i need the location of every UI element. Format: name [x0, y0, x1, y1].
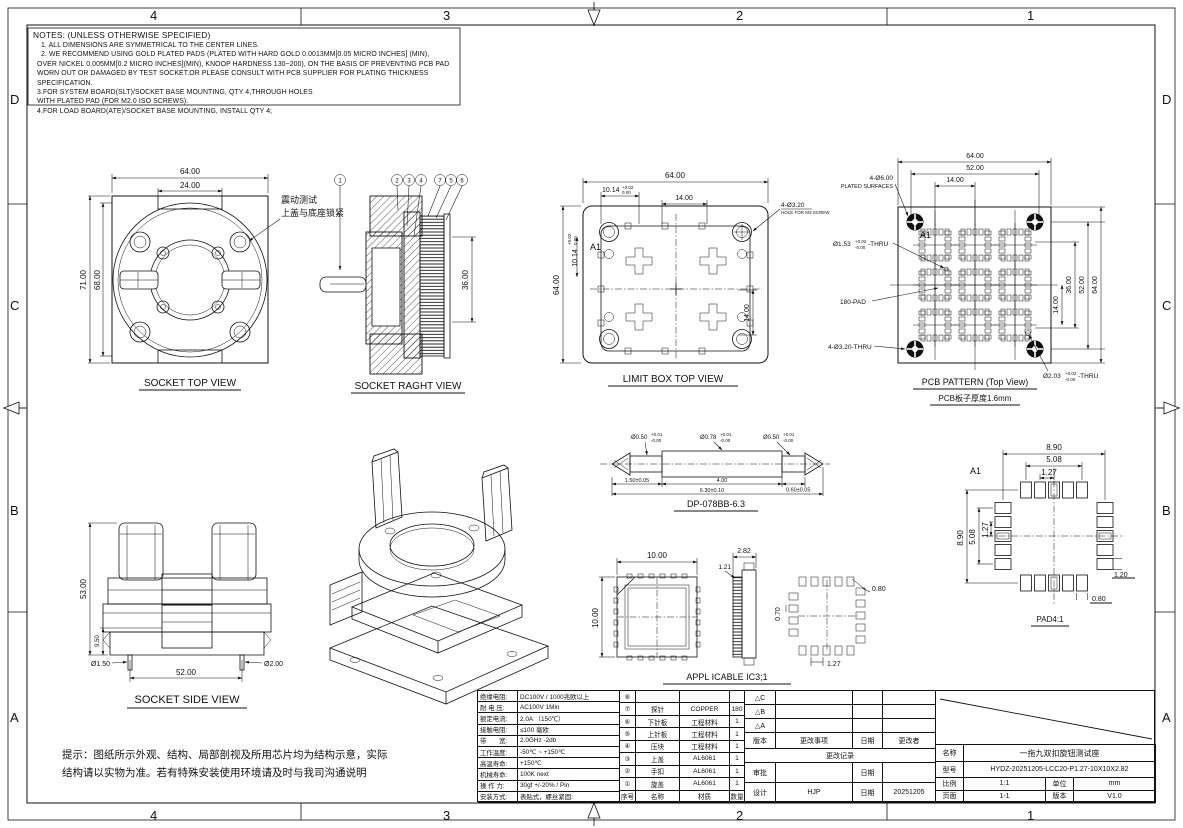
scale-label: 比例 [936, 778, 964, 791]
dim-label: 52.00 [176, 668, 197, 677]
zone-label-bottom-4: 4 [150, 808, 157, 823]
notes-line: WITH PLATED PAD (FOR M2.0 ISO SCREWS). [33, 97, 457, 106]
dim-label: 68.00 [93, 269, 102, 290]
zone-label-left-c: C [10, 298, 19, 313]
dim-label: 64.00 [966, 153, 984, 160]
rev-empty [883, 705, 936, 719]
spec-value: DC100V / 1000兆欧以上 [518, 691, 620, 702]
svg-text:-THRU: -THRU [868, 241, 889, 248]
hole-callout-2: HOLE FOR M3 SCREW [781, 210, 830, 215]
spec-label: 绝缘电阻: [478, 691, 518, 702]
svg-text:+0.01: +0.01 [783, 432, 795, 437]
zone-label-bottom-1: 1 [1027, 808, 1034, 823]
spec-label: 接触电阻: [478, 725, 518, 736]
svg-text:+0.01: +0.01 [651, 432, 663, 437]
zone-label-left-a: A [10, 710, 19, 725]
notes-line: 2. WE RECOMMEND USING GOLD PLATED PADS (… [33, 50, 457, 59]
view-probe: Ø0.50 +0.01 -0.00 Ø0.78 +0.01 -0.00 Ø0.5… [600, 432, 830, 511]
bom-no: ④ [620, 741, 636, 753]
svg-text:5: 5 [449, 179, 453, 185]
bom-name: 上盖 [636, 753, 680, 765]
bom-name: 上针板 [636, 728, 680, 740]
bom-header-name: 名称 [636, 791, 680, 803]
bom-name: 下针板 [636, 716, 680, 728]
spec-label: 机械寿命: [478, 769, 518, 780]
isometric-view [330, 449, 548, 704]
dim-label: 64.00 [665, 171, 686, 180]
spec-value: 表贴式，螺丝紧固: [518, 792, 620, 803]
dim-label: 2.82 [737, 548, 751, 555]
bom-material: COPPER [680, 703, 730, 715]
dim-label: 14.00 [1053, 296, 1060, 314]
rev-empty [883, 719, 936, 733]
page-value: 1-1 [964, 791, 1046, 804]
spec-value: 100K next [518, 769, 620, 780]
latch-right [222, 271, 260, 289]
unit-label: 单位 [1046, 778, 1074, 791]
model-label: 型号 [936, 762, 964, 778]
mount-hole [907, 214, 924, 231]
view-label: DP-078BB-6.3 [687, 499, 745, 509]
svg-text:+0.02: +0.02 [855, 239, 867, 244]
dim-label: 5.08 [1046, 455, 1062, 464]
rev-empty [853, 705, 883, 719]
bom-name: 压块 [636, 741, 680, 753]
dim-label: 1.27 [827, 661, 841, 668]
engineering-drawing-sheet: 64.00 24.00 71.00 68.00 震动测试 上盖与底座锁紧 SOC… [0, 0, 1183, 828]
rev-empty [883, 691, 936, 705]
dim-label: 9.50 [95, 635, 101, 647]
unit-value: mm [1074, 778, 1156, 791]
revision-table: △C △B △A 版本更改事项日期更改者 更改记录 审批日期 设计HJP日期20… [745, 691, 936, 801]
dim-label: 6.30±0.10 [700, 488, 724, 494]
version-value: V1.0 [1074, 791, 1156, 804]
rev-header-by: 更改者 [883, 733, 936, 749]
bom-header-material: 材质 [680, 791, 730, 803]
approve-name [776, 763, 853, 783]
center-mark-right [1157, 402, 1180, 414]
tip-note: 提示：图纸所示外观、结构、局部剖视及所用芯片均为结构示意，实际 结构请以实物为准… [62, 746, 452, 782]
view-label: APPL ICABLE IC3;1 [686, 672, 767, 682]
dim-label: 5.08 [968, 529, 977, 545]
dim-label: 8.90 [1046, 443, 1062, 452]
design-date-label: 日期 [853, 783, 883, 803]
view-pad-4to1: 8.90 5.08 1.27 8.90 5.08 1.27 1.20 0.80 … [956, 443, 1135, 626]
dim-label: Ø2.00 [264, 661, 283, 668]
rev-empty [853, 719, 883, 733]
view-applicable-ic: 10.00 10.00 2.82 1.21 0.80 0.70 1.27 APP… [591, 548, 886, 684]
view-label: LIMIT BOX TOP VIEW [623, 374, 724, 385]
bom-no: ② [620, 766, 636, 778]
notes-line: 4.FOR LOAD BOARD(ATE)/SOCKET BASE MOUNTI… [33, 107, 457, 116]
bom-no: ⑦ [620, 703, 636, 715]
dim-label: 10.14 [602, 187, 620, 194]
dim-label: 36.00 [461, 269, 470, 290]
rev-symbol-c: △C [745, 691, 776, 705]
svg-text:-0.00: -0.00 [1065, 377, 1076, 382]
bom-name: 旋盖 [636, 778, 680, 790]
rev-header-date: 日期 [853, 733, 883, 749]
bom-no: ③ [620, 753, 636, 765]
dim-label: 24.00 [180, 181, 201, 190]
bom-material: 工程材料 [680, 728, 730, 740]
dia-callout: Ø0.50 [631, 435, 648, 441]
approve-label: 审批 [745, 763, 776, 783]
title-block: 绝缘电阻:DC100V / 1000兆欧以上 耐 电 压:AC100V 1Min… [477, 690, 1155, 802]
spec-value: 2.0A （150℃） [518, 713, 620, 724]
mount-hole [1027, 341, 1044, 358]
dim-label: 52.00 [966, 165, 984, 172]
plated-callout: 4-Ø6.00 [870, 175, 894, 182]
vibration-note-line1: 震动测试 [281, 194, 317, 205]
pin1-marker: A1 [970, 466, 981, 476]
zone-label-top-1: 1 [1027, 8, 1034, 23]
bom-qty: 180 [730, 703, 745, 715]
svg-text:+0.02: +0.02 [1065, 371, 1077, 376]
spec-value: AC100V 1Min [518, 702, 620, 713]
bom-qty: 1 [730, 741, 745, 753]
notes-block: NOTES: (UNLESS OTHERWISE SPECIFIED) 1. A… [33, 30, 457, 116]
spec-value: +150℃ [518, 758, 620, 769]
zone-label-top-4: 4 [150, 8, 157, 23]
view-limit-box: 64.00 10.14 +0.02 0.00 14.00 64.00 10.14… [552, 171, 830, 386]
mount-hole-callout: 4-Ø3.20-THRU [828, 344, 872, 351]
approve-date-label: 日期 [853, 763, 883, 783]
vibration-note-line2: 上盖与底座锁紧 [281, 207, 344, 218]
bom-header-no: 序号 [620, 791, 636, 803]
zone-label-top-3: 3 [443, 8, 450, 23]
pin1-marker: A1 [590, 242, 601, 252]
dim-label: 0.80 [872, 586, 886, 593]
tolerance-lower: 0.00 [622, 190, 631, 195]
dim-label: 0.60±0.05 [786, 488, 810, 494]
spec-label: 带 宽: [478, 736, 518, 747]
bom-no: ⑤ [620, 728, 636, 740]
spec-label: 额定电流: [478, 713, 518, 724]
balloon-5: 7 [428, 175, 446, 217]
bom-header-qty: 数量 [730, 791, 745, 803]
dim-label: 64.00 [552, 274, 561, 295]
notes-title: NOTES: (UNLESS OTHERWISE SPECIFIED) [33, 30, 457, 41]
svg-text:-0.00: -0.00 [783, 438, 794, 443]
svg-text:6: 6 [460, 179, 464, 185]
pin1-marker: A1 [920, 230, 931, 240]
svg-text:-0.00: -0.00 [720, 438, 731, 443]
dim-label: 1.21 [718, 564, 731, 571]
view-label: SOCKET SIDE VIEW [135, 694, 241, 706]
design-label: 设计 [745, 783, 776, 803]
zone-label-right-c: C [1162, 298, 1171, 313]
product-name: 一拖九双扣旋钮测试座 [964, 745, 1156, 762]
view-label: PAD4:1 [1037, 615, 1065, 624]
spec-value: 2.0GHz -2db [518, 736, 620, 747]
center-mark-left [3, 402, 26, 414]
zone-label-right-b: B [1162, 503, 1171, 518]
tip-note-line2: 结构请以实物为准。若有特殊安装使用环境请及时与我司沟通说明 [62, 764, 452, 782]
center-mark-top [588, 2, 600, 26]
svg-text:10.14: 10.14 [572, 249, 579, 267]
dim-label: 14.00 [744, 304, 751, 322]
info-block: 名称 一拖九双扣旋钮测试座 型号 HYDZ-20251205-LCC20-P1.… [936, 691, 1156, 801]
dim-label: 64.00 [1092, 276, 1099, 294]
name-label: 名称 [936, 745, 964, 762]
bom-material: 工程材料 [680, 716, 730, 728]
dia-callout: Ø0.78 [700, 435, 717, 441]
spec-value: -50℃ ~ +150℃ [518, 747, 620, 758]
rev-empty [776, 719, 853, 733]
view-label: SOCKET TOP VIEW [144, 378, 237, 389]
view-label: PCB PATTERN (Top View) [922, 377, 1029, 387]
zone-label-top-2: 2 [736, 8, 743, 23]
spec-label: 工作温度: [478, 747, 518, 758]
dim-label: 14.00 [675, 195, 693, 202]
view-pcb-pattern: 64.00 52.00 14.00 14.00 36.00 52.00 64.0… [828, 153, 1105, 405]
spec-table: 绝缘电阻:DC100V / 1000兆欧以上 耐 电 压:AC100V 1Min… [478, 691, 620, 801]
dim-label: 1.27 [1041, 468, 1057, 477]
spec-label: 耐 电 压: [478, 702, 518, 713]
svg-text:2: 2 [395, 179, 399, 185]
dim-label: 14.00 [946, 177, 964, 184]
version-label: 版本 [1046, 791, 1074, 804]
dia-callout: Ø0.50 [763, 435, 780, 441]
hole-callout: 4-Ø3.20 [781, 202, 805, 209]
spec-label: 安装方式: [478, 792, 518, 803]
bom-material: AL6061 [680, 778, 730, 790]
mount-hole [907, 341, 924, 358]
bom-table: ⑧ ⑦探针COPPER180 ⑥下针板工程材料1 ⑤上针板工程材料1 ④压块工程… [620, 691, 745, 801]
approve-date [883, 763, 936, 783]
rev-symbol-b: △B [745, 705, 776, 719]
zone-label-bottom-2: 2 [736, 808, 743, 823]
dim-label: 71.00 [79, 269, 88, 290]
bom-name: 手扣 [636, 766, 680, 778]
bom-material: 工程材料 [680, 741, 730, 753]
bom-qty: 1 [730, 753, 745, 765]
zone-label-right-d: D [1162, 92, 1171, 107]
rev-header-change: 更改事项 [776, 733, 853, 749]
svg-text:+0.02: +0.02 [567, 233, 572, 245]
dim-label: 1.50±0.05 [625, 478, 649, 484]
svg-text:3: 3 [407, 179, 411, 185]
bom-material: AL6061 [680, 753, 730, 765]
zone-label-left-d: D [10, 92, 19, 107]
logo-area [936, 691, 1156, 745]
bom-material: AL6061 [680, 766, 730, 778]
dim-label: 8.90 [956, 530, 965, 546]
bom-name: 探针 [636, 703, 680, 715]
bom-material [680, 691, 730, 703]
dim-label: 52.00 [1079, 276, 1086, 294]
dim-label: 53.00 [79, 578, 88, 599]
tip-note-line1: 提示：图纸所示外观、结构、局部剖视及所用芯片均为结构示意，实际 [62, 746, 452, 764]
bom-no: ① [620, 778, 636, 790]
view-socket-top: 64.00 24.00 71.00 68.00 震动测试 上盖与底座锁紧 SOC… [79, 167, 344, 390]
svg-text:-0.00: -0.00 [855, 245, 866, 250]
notes-line: 1. ALL DIMENSIONS ARE SYMMETRICAL TO THE… [33, 41, 457, 50]
zone-label-right-a: A [1162, 710, 1171, 725]
via-callout: Ø1.53 [833, 241, 851, 248]
dim-label: 4.00 [717, 478, 728, 484]
spec-label: 操 作 力: [478, 781, 518, 792]
dim-label: 0.80 [1092, 596, 1106, 603]
pad-count-callout: 180-PAD [840, 299, 866, 306]
spec-value: 30gf +/-20% / Pin [518, 781, 620, 792]
scale-value: 1:1 [964, 778, 1046, 791]
bom-no: ⑧ [620, 691, 636, 703]
bom-qty: 1 [730, 778, 745, 790]
rev-empty [853, 691, 883, 705]
notes-line: OVER NICKEL 0.005MM[0.2 MICRO INCHES](MI… [33, 60, 457, 69]
rev-header-version: 版本 [745, 733, 776, 749]
latch-left [120, 271, 158, 289]
svg-text:-THRU: -THRU [1078, 373, 1099, 380]
svg-text:1: 1 [338, 179, 342, 185]
bom-qty: 1 [730, 716, 745, 728]
dim-label: Ø1.50 [91, 661, 110, 668]
spec-value: ≤100 毫欧 [518, 725, 620, 736]
rev-empty [776, 705, 853, 719]
center-mark-bottom [588, 802, 600, 826]
dim-label: 10.00 [591, 607, 600, 628]
zone-label-bottom-3: 3 [443, 808, 450, 823]
model-number: HYDZ-20251205-LCC20-P1.27-10X10X2.82 [964, 762, 1156, 778]
dim-label: 0.70 [775, 607, 782, 621]
notes-line: WORN OUT OR DAMAGED BY TEST SOCKET.OR PL… [33, 69, 457, 88]
view-label: SOCKET RAGHT VIEW [355, 381, 462, 392]
mount-hole [1027, 214, 1044, 231]
rev-symbol-a: △A [745, 719, 776, 733]
dim-label: 36.00 [1066, 276, 1073, 294]
design-date: 20251205 [883, 783, 936, 803]
svg-text:7: 7 [438, 179, 442, 185]
bom-qty: 1 [730, 766, 745, 778]
plated-callout-2: PLATED SURFACES [841, 184, 893, 190]
dim-label: 1.27 [981, 522, 990, 538]
dim-label: 10.00 [647, 551, 668, 560]
rev-change-record: 更改记录 [745, 749, 936, 763]
svg-text:+0.01: +0.01 [720, 432, 732, 437]
notes-line: 3.FOR SYSTEM BOARD(SLT)/SOCKET BASE MOUN… [33, 88, 457, 97]
svg-text:4: 4 [419, 179, 423, 185]
spec-label: 高温寿命: [478, 758, 518, 769]
svg-text:-0.00: -0.00 [651, 438, 662, 443]
zone-label-left-b: B [10, 503, 19, 518]
logo-diagonal [936, 691, 1156, 745]
designer-name: HJP [776, 783, 853, 803]
balloon-1: 1 [335, 175, 346, 271]
bom-name [636, 691, 680, 703]
bom-no: ⑥ [620, 716, 636, 728]
guide-hole-callout: Ø2.03 [1043, 373, 1061, 380]
dim-label: 64.00 [180, 167, 201, 176]
view-sublabel: PCB板子厚度1.6mm [939, 393, 1012, 403]
bom-qty [730, 691, 745, 703]
rev-empty [776, 691, 853, 705]
page-label: 页面 [936, 791, 964, 804]
bom-qty: 1 [730, 728, 745, 740]
view-socket-side: 53.00 9.50 Ø1.50 Ø2.00 52.00 SOCKET SIDE… [79, 523, 283, 708]
